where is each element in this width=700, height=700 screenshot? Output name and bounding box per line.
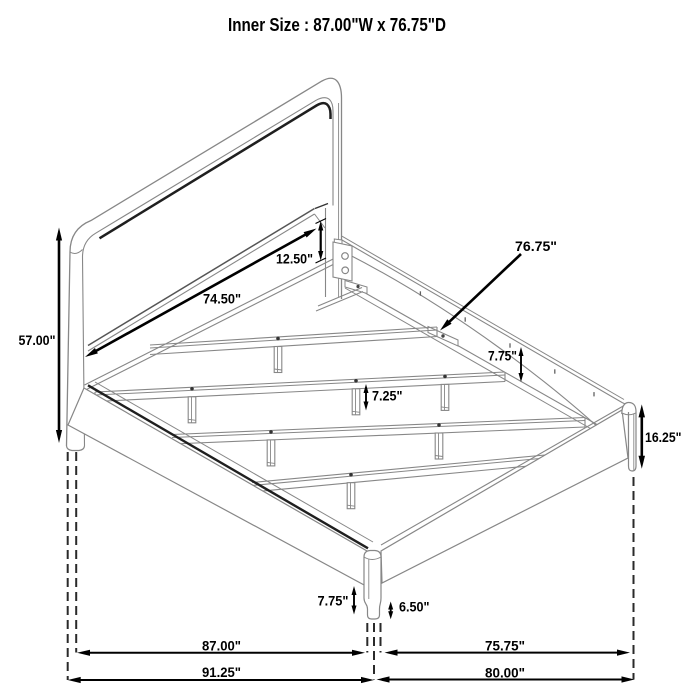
svg-text:80.00": 80.00" [485,666,525,681]
svg-text:12.50": 12.50" [276,252,313,267]
svg-text:87.00": 87.00" [202,638,241,653]
svg-text:7.75": 7.75" [318,594,349,609]
svg-text:74.50": 74.50" [203,292,241,307]
svg-text:57.00": 57.00" [19,333,56,348]
svg-text:16.25": 16.25" [645,430,682,445]
svg-text:6.50": 6.50" [399,599,430,614]
svg-text:76.75": 76.75" [515,239,557,254]
svg-text:91.25": 91.25" [202,665,241,680]
svg-text:7.75": 7.75" [488,349,517,364]
svg-text:7.25": 7.25" [372,389,403,404]
svg-text:75.75": 75.75" [485,638,525,653]
svg-text:Inner Size : 87.00"W x 76.75"D: Inner Size : 87.00"W x 76.75"D [228,14,446,35]
